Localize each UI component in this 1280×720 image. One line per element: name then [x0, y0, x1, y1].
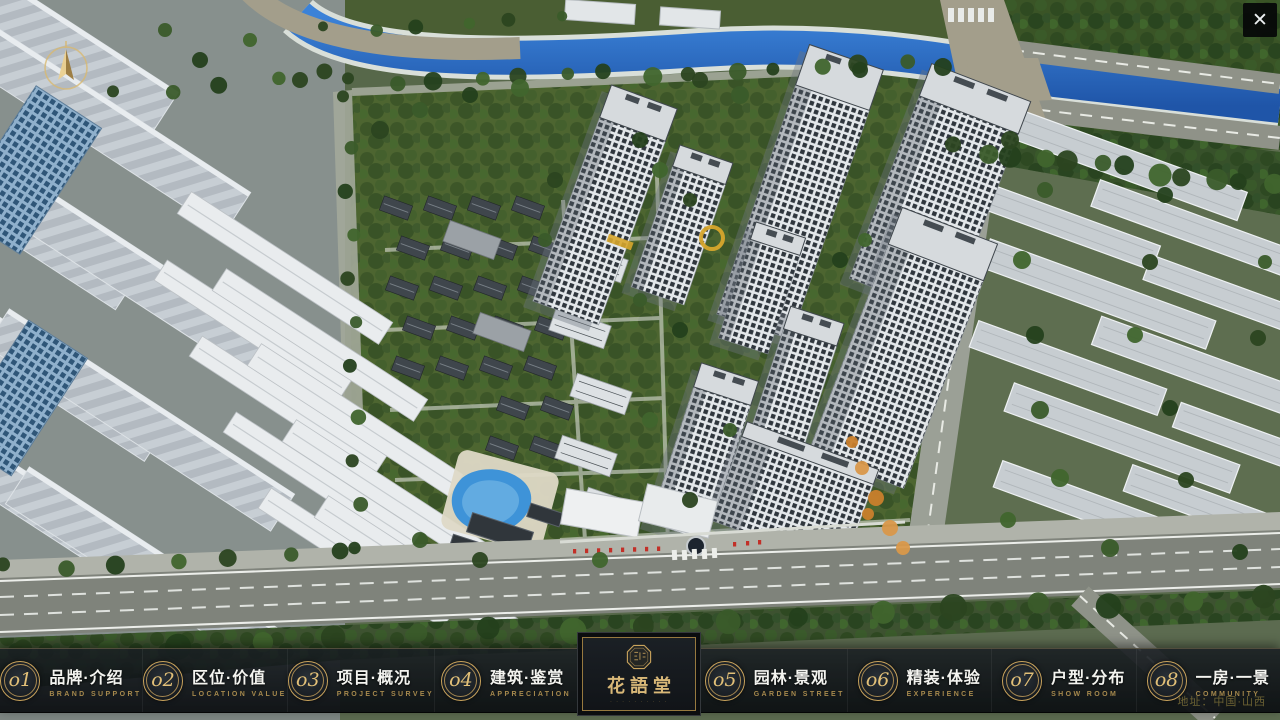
nav-item-architecture[interactable]: o4 建筑·鉴赏 APPRECIATION	[435, 649, 577, 712]
tree	[934, 58, 952, 76]
red-flag	[645, 547, 648, 552]
nav-number-badge: o4	[441, 661, 481, 701]
tree	[107, 85, 119, 97]
autumn-tree	[882, 520, 898, 536]
tree	[409, 623, 428, 642]
bottom-navbar: o1 品牌·介绍 BRAND SUPPORT o2 区位·价值 LOCATION…	[0, 648, 1280, 713]
nav-label-en: SHOW ROOM	[1051, 691, 1118, 698]
nav-number-badge: o7	[1002, 661, 1042, 701]
nav-item-unit-layout[interactable]: o7 户型·分布 SHOW ROOM	[992, 649, 1137, 712]
tree	[477, 617, 500, 640]
tree	[592, 552, 608, 568]
nav-labels: 户型·分布 SHOW ROOM	[1051, 664, 1125, 698]
tree	[1114, 155, 1134, 175]
tree	[1142, 254, 1158, 270]
nav-item-project-survey[interactable]: o3 项目·概况 PROJECT SURVEY	[288, 649, 435, 712]
tree	[767, 63, 780, 76]
tree	[632, 132, 648, 148]
tree	[1230, 173, 1247, 190]
nav-number: o1	[9, 669, 33, 691]
red-flag	[746, 541, 749, 546]
tree	[562, 68, 574, 80]
tree	[408, 20, 423, 35]
red-flag	[585, 549, 588, 554]
red-flag	[758, 540, 761, 545]
nav-label-zh: 区位·价值	[192, 664, 266, 688]
nav-number: o7	[1010, 669, 1034, 691]
tree	[1013, 251, 1031, 269]
tree	[284, 547, 298, 561]
tree	[852, 62, 868, 78]
tree	[1127, 327, 1143, 343]
tree	[472, 552, 488, 568]
tree	[345, 141, 359, 155]
tree	[940, 594, 967, 621]
nav-label-zh: 户型·分布	[1051, 664, 1125, 688]
tree	[1250, 330, 1266, 346]
tree	[337, 90, 349, 102]
tree	[1000, 512, 1016, 528]
nav-number: o4	[449, 669, 473, 691]
tree	[672, 322, 688, 338]
tree	[1157, 187, 1173, 203]
tree	[462, 87, 478, 103]
red-flag	[657, 546, 660, 551]
autumn-tree	[855, 461, 869, 475]
nav-label-zh: 项目·概况	[337, 664, 411, 688]
tree	[547, 172, 563, 188]
tree	[716, 609, 741, 634]
tree	[1149, 164, 1172, 187]
nav-number: o3	[296, 669, 320, 691]
tree	[412, 102, 428, 118]
nav-label-en: PROJECT SURVEY	[337, 691, 434, 698]
tree	[643, 67, 662, 86]
nav-labels: 品牌·介绍 BRAND SUPPORT	[49, 664, 141, 698]
tree	[476, 72, 490, 86]
tree	[1037, 150, 1055, 168]
tree	[1178, 472, 1194, 488]
nav-label-zh: 建筑·鉴赏	[490, 664, 564, 688]
tree	[346, 454, 359, 467]
tree	[243, 33, 257, 47]
nav-label-en: GARDEN STREET	[754, 691, 845, 698]
tree	[171, 554, 186, 569]
tree	[511, 79, 529, 97]
nav-label-zh: 精装·体验	[907, 664, 981, 688]
nav-item-location-value[interactable]: o2 区位·价值 LOCATION VALUE	[143, 649, 288, 712]
tree	[1258, 255, 1272, 269]
tree	[642, 412, 658, 428]
nav-labels: 精装·体验 EXPERIENCE	[907, 664, 981, 698]
nav-label-zh: 品牌·介绍	[49, 664, 123, 688]
tree	[166, 85, 180, 99]
tree	[682, 492, 698, 508]
tree	[979, 145, 998, 164]
tree	[557, 11, 567, 21]
autumn-tree	[896, 541, 910, 555]
tree	[343, 359, 357, 373]
tree	[872, 601, 895, 624]
tree	[210, 77, 227, 94]
nav-label-en: LOCATION VALUE	[192, 691, 287, 698]
compass-icon	[38, 38, 94, 94]
logo-frame: 花語堂 · · · · · · · · · ·	[582, 637, 696, 711]
tree	[789, 608, 808, 627]
navbar-left-zone: o1 品牌·介绍 BRAND SUPPORT o2 区位·价值 LOCATION…	[0, 649, 577, 712]
logo-title: 花語堂	[607, 672, 676, 698]
nav-label-zh: 园林·景观	[754, 664, 828, 688]
autumn-tree	[846, 436, 858, 448]
nav-labels: 区位·价值 LOCATION VALUE	[192, 664, 287, 698]
tree	[332, 543, 349, 560]
tree	[1031, 401, 1049, 419]
tree	[192, 52, 208, 68]
tree	[1057, 150, 1078, 171]
nav-number-badge: o5	[705, 661, 745, 701]
tree	[351, 409, 366, 424]
red-flag	[621, 548, 624, 553]
tree	[538, 233, 552, 247]
tree	[219, 549, 237, 567]
tree	[945, 136, 961, 152]
tree	[272, 72, 285, 85]
red-flag	[609, 548, 612, 553]
tree	[595, 63, 611, 79]
tree	[1206, 169, 1228, 191]
autumn-tree	[862, 508, 874, 520]
tree	[340, 271, 355, 286]
tree	[1252, 585, 1276, 609]
nav-item-brand-intro[interactable]: o1 品牌·介绍 BRAND SUPPORT	[0, 649, 143, 712]
tree	[1026, 326, 1044, 344]
nav-item-decor-experience[interactable]: o6 精装·体验 EXPERIENCE	[848, 649, 993, 712]
nav-number: o2	[151, 669, 175, 691]
tree	[342, 72, 354, 84]
tree	[347, 229, 360, 242]
tree	[292, 72, 308, 88]
logo-slot: 花語堂 · · · · · · · · · ·	[577, 649, 703, 712]
tree	[1096, 593, 1121, 618]
logo-tagline: · · · · · · · · · ·	[610, 700, 668, 705]
nav-number-badge: o6	[858, 661, 898, 701]
tree	[371, 121, 389, 139]
tree	[390, 76, 405, 91]
tree	[1162, 400, 1178, 416]
tree	[1001, 131, 1019, 149]
tree	[1232, 544, 1248, 560]
tree	[353, 497, 368, 512]
tree	[1037, 182, 1053, 198]
tree	[106, 556, 125, 575]
tree	[424, 72, 443, 91]
masterplan-scene	[0, 0, 1280, 720]
tree	[858, 233, 872, 247]
tree	[338, 184, 353, 199]
tree	[1051, 469, 1069, 487]
tree	[370, 24, 382, 36]
tree	[1095, 155, 1111, 171]
tree	[832, 252, 848, 268]
tree	[58, 560, 74, 576]
tree	[815, 59, 831, 75]
tree	[652, 162, 668, 178]
tree	[348, 542, 360, 554]
nav-label-en: APPRECIATION	[490, 691, 571, 698]
tree	[1172, 168, 1190, 186]
close-icon: ✕	[1252, 9, 1268, 31]
nav-label-en: EXPERIENCE	[907, 691, 976, 698]
nav-labels: 项目·概况 PROJECT SURVEY	[337, 664, 434, 698]
tree	[318, 21, 328, 31]
tree	[729, 63, 747, 81]
seal-icon	[626, 644, 652, 670]
nav-item-garden-landscape[interactable]: o5 园林·景观 GARDEN STREET	[703, 649, 848, 712]
nav-number: o5	[713, 669, 737, 691]
tree	[501, 13, 515, 27]
tree	[683, 193, 697, 207]
tree	[321, 625, 345, 649]
autumn-tree	[868, 490, 884, 506]
tree	[1184, 592, 1204, 612]
tree	[158, 23, 172, 37]
red-flag	[633, 547, 636, 552]
nav-labels: 园林·景观 GARDEN STREET	[754, 664, 845, 698]
tree	[692, 72, 708, 88]
masterplan-viewport: ✕ o1 品牌·介绍 BRAND SUPPORT o2 区位·价值 LOCATI…	[0, 0, 1280, 720]
tree	[350, 316, 362, 328]
tree	[1028, 592, 1049, 613]
tree	[731, 86, 749, 104]
address-text: 地址：中国·山西	[1177, 693, 1266, 709]
nav-number-badge: o2	[143, 661, 183, 701]
tree	[316, 63, 332, 79]
tree	[723, 423, 737, 437]
tree	[900, 54, 915, 69]
nav-number-badge: o1	[0, 661, 40, 701]
tree	[412, 532, 428, 548]
nav-label-en: BRAND SUPPORT	[49, 691, 141, 698]
tree	[464, 18, 475, 29]
nav-labels: 建筑·鉴赏 APPRECIATION	[490, 664, 571, 698]
nav-label-zh: 一房·一景	[1196, 664, 1270, 688]
close-button[interactable]: ✕	[1243, 3, 1277, 37]
logo-panel[interactable]: 花語堂 · · · · · · · · · ·	[577, 632, 701, 716]
tree	[633, 293, 647, 307]
tree	[1101, 539, 1119, 557]
nav-number-badge: o3	[288, 661, 328, 701]
nav-number: o6	[866, 669, 890, 691]
nav-number: o8	[1155, 669, 1179, 691]
red-flag	[733, 542, 736, 547]
red-flag	[573, 549, 576, 554]
